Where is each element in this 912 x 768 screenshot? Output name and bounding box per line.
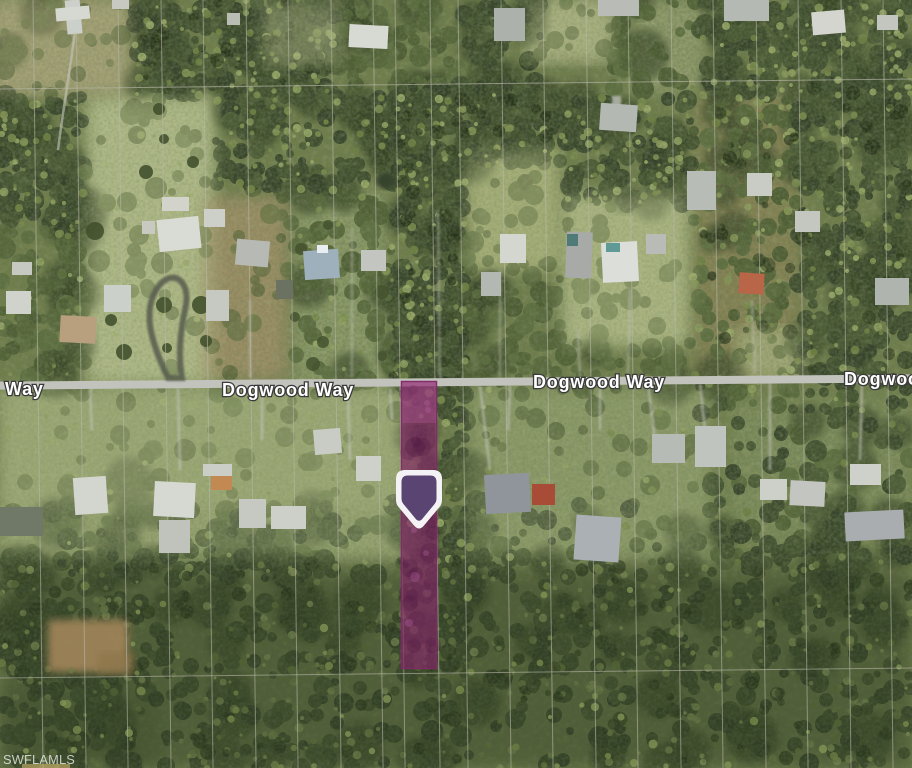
svg-text:Dogwood Way: Dogwood Way (533, 372, 665, 392)
svg-text:Dogwood: Dogwood (844, 369, 912, 389)
svg-text:Way: Way (5, 379, 44, 399)
svg-text:Dogwood Way: Dogwood Way (222, 380, 354, 400)
